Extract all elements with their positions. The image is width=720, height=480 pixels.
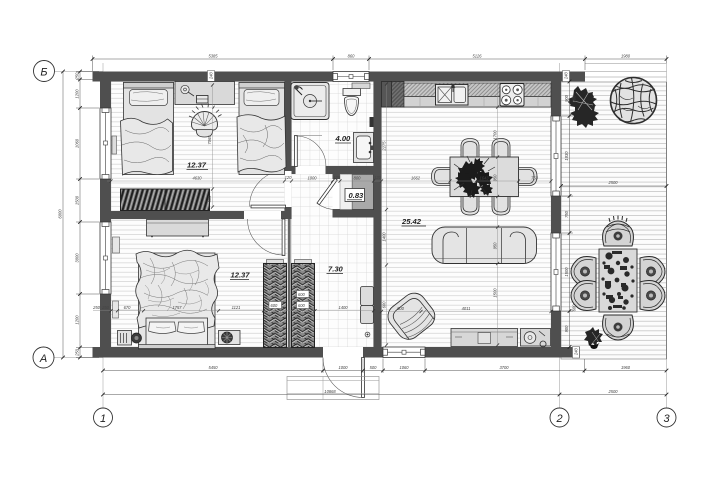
svg-text:500: 500 — [370, 365, 378, 370]
svg-text:5450: 5450 — [208, 365, 218, 370]
svg-text:1500: 1500 — [564, 267, 569, 277]
svg-text:0.83: 0.83 — [349, 191, 365, 200]
svg-text:1643: 1643 — [479, 176, 489, 181]
svg-text:120: 120 — [333, 175, 341, 180]
svg-text:1200: 1200 — [75, 89, 80, 99]
svg-text:2: 2 — [555, 413, 562, 425]
svg-text:12.37: 12.37 — [187, 161, 207, 170]
svg-text:120: 120 — [374, 175, 382, 180]
svg-text:5126: 5126 — [472, 54, 482, 59]
svg-text:7065: 7065 — [207, 135, 212, 145]
svg-text:1121: 1121 — [232, 305, 241, 310]
svg-text:4.00: 4.00 — [335, 134, 352, 143]
svg-text:1060: 1060 — [75, 138, 80, 148]
svg-text:1960: 1960 — [621, 365, 631, 370]
svg-text:2500: 2500 — [607, 180, 618, 185]
svg-text:1500: 1500 — [75, 195, 80, 205]
svg-text:1000: 1000 — [307, 176, 317, 181]
svg-text:250: 250 — [92, 305, 101, 310]
svg-text:250: 250 — [75, 348, 80, 357]
svg-text:1980: 1980 — [621, 54, 631, 59]
svg-text:900: 900 — [564, 325, 569, 333]
svg-text:25.42: 25.42 — [401, 217, 422, 226]
svg-text:1200: 1200 — [75, 315, 80, 325]
svg-text:600: 600 — [298, 303, 306, 308]
svg-text:763: 763 — [531, 176, 539, 181]
svg-text:3: 3 — [663, 413, 670, 425]
svg-text:10868: 10868 — [324, 389, 336, 394]
svg-text:600: 600 — [298, 292, 306, 297]
svg-text:900: 900 — [572, 95, 577, 103]
svg-text:240: 240 — [209, 71, 214, 80]
svg-text:4011: 4011 — [462, 306, 471, 311]
svg-text:800: 800 — [354, 176, 362, 181]
svg-text:12.37: 12.37 — [231, 271, 251, 280]
svg-text:2275: 2275 — [381, 141, 386, 152]
svg-text:1662: 1662 — [411, 176, 421, 181]
svg-text:1757: 1757 — [172, 305, 182, 310]
svg-text:5385: 5385 — [208, 54, 218, 59]
svg-text:7.30: 7.30 — [328, 265, 344, 274]
svg-text:Б: Б — [40, 67, 47, 79]
svg-text:1700: 1700 — [492, 130, 497, 140]
svg-text:1400: 1400 — [338, 305, 348, 310]
svg-text:600: 600 — [397, 306, 405, 311]
svg-text:900: 900 — [564, 94, 569, 102]
svg-text:250: 250 — [101, 305, 110, 310]
svg-text:860: 860 — [348, 54, 356, 59]
svg-text:600: 600 — [271, 303, 279, 308]
svg-text:1: 1 — [100, 413, 106, 425]
svg-text:1500: 1500 — [492, 288, 497, 298]
svg-text:240: 240 — [574, 347, 579, 356]
svg-text:1060: 1060 — [399, 365, 409, 370]
svg-text:600: 600 — [572, 304, 577, 312]
svg-text:2500: 2500 — [607, 389, 618, 394]
svg-text:1830: 1830 — [564, 151, 569, 161]
svg-text:6000: 6000 — [58, 209, 63, 219]
svg-text:250: 250 — [75, 72, 80, 81]
svg-text:750: 750 — [564, 210, 569, 218]
svg-text:120: 120 — [285, 175, 293, 180]
svg-text:3700: 3700 — [499, 365, 509, 370]
svg-text:240: 240 — [564, 71, 569, 80]
svg-text:4630: 4630 — [192, 176, 202, 181]
svg-text:500: 500 — [207, 195, 212, 203]
svg-text:A: A — [39, 353, 47, 365]
svg-text:600: 600 — [381, 301, 386, 309]
svg-text:950: 950 — [492, 242, 497, 250]
svg-text:950: 950 — [492, 174, 497, 182]
svg-text:1000: 1000 — [338, 365, 348, 370]
svg-text:3000: 3000 — [75, 253, 80, 263]
svg-text:670: 670 — [124, 305, 132, 310]
svg-text:1400: 1400 — [381, 232, 386, 242]
